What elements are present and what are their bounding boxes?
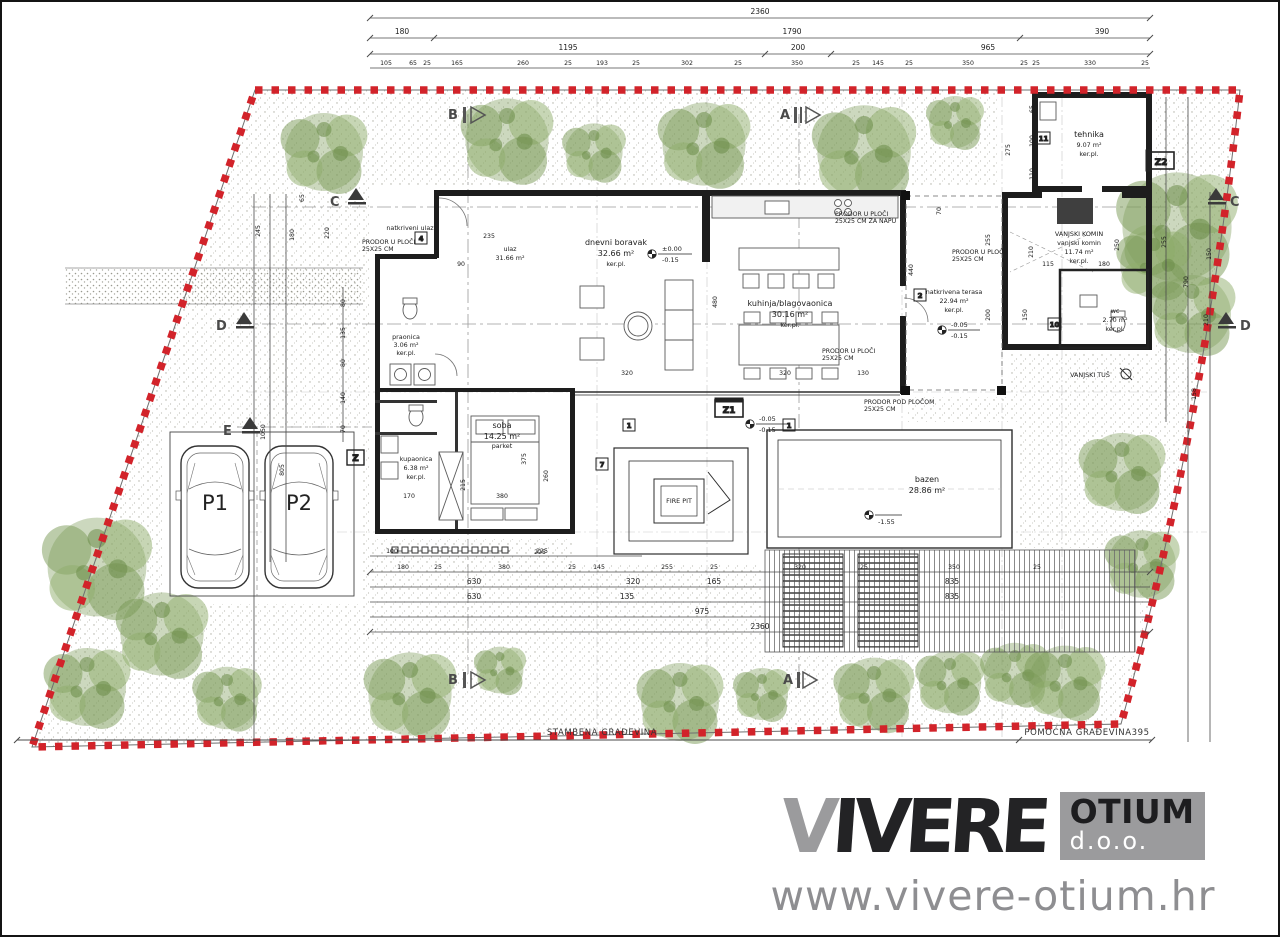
callout-1: 1	[627, 422, 632, 430]
dim-label: 2360	[750, 622, 769, 631]
brand-wordmark: VIVERE	[779, 792, 1048, 862]
dim-label: 25	[734, 60, 742, 67]
room-bedroom-area: 14.25 m²	[484, 432, 520, 441]
room-kitchen-area: 30.16 m²	[772, 310, 808, 319]
dim-label: 65	[409, 60, 417, 67]
room-bathroom-area: 6.38 m²	[403, 464, 428, 472]
room-terrace-name: natkrivena terasa	[926, 288, 983, 296]
annotation: PRODOR U PLOČI	[835, 209, 888, 218]
dim-label: 25	[423, 60, 431, 67]
parking-p2-label: P2	[286, 491, 312, 515]
dim-label: 110	[1029, 168, 1036, 180]
annotation: 25X25 CM	[822, 355, 854, 362]
room-living-floor: ker.pl.	[606, 260, 625, 268]
room-wc-floor: ker.pl.	[1105, 325, 1124, 333]
dim-label: 225	[534, 549, 546, 556]
dim-label: 70	[340, 425, 347, 433]
room-chimney-floor: ker.pl.	[1069, 257, 1088, 265]
dim-label: 210	[1203, 314, 1210, 326]
section-marker-b-top: B	[448, 108, 458, 123]
dim-label: 2360	[750, 7, 769, 16]
dim-label: 835	[945, 577, 960, 586]
room-bathroom-floor: ker.pl.	[406, 473, 425, 481]
logo-row: VIVERE OTIUM d.o.o.	[750, 792, 1236, 862]
dim-label: 165	[451, 60, 463, 67]
section-marker-a-bottom: A	[783, 673, 793, 688]
dim-label: 180	[395, 27, 410, 36]
dim-label: 165	[707, 577, 722, 586]
dim-label: 255	[985, 234, 992, 246]
dim-label: 320	[794, 564, 806, 571]
room-kitchen-name: kuhinja/blagovaonica	[748, 299, 833, 308]
annotation: 25X25 CM ZA NAPU	[835, 218, 896, 225]
dim-label: 140	[340, 392, 347, 404]
annotation: PRODOR POD PLOČOM	[864, 397, 935, 406]
room-living-name: dnevni boravak	[585, 238, 647, 247]
section-marker-d-left: D	[216, 319, 227, 334]
room-porch-name: natkriveni ulaz	[386, 224, 434, 232]
site-label-left: STAMBENA GRAĐEVINA	[547, 728, 657, 738]
annotation: PRODOR U PLOČI	[362, 237, 415, 246]
level-value: -1.55	[878, 518, 895, 526]
room-bedroom-floor: parket	[492, 442, 513, 450]
dim-label: 70	[936, 207, 943, 215]
brand-suffix-line1: OTIUM	[1070, 796, 1195, 828]
dim-label: 65	[299, 194, 306, 202]
dim-label: 25	[860, 564, 868, 571]
dim-label: 145	[872, 60, 884, 67]
dim-label: 180	[289, 229, 296, 241]
dim-label: 150	[1206, 248, 1213, 260]
section-marker-a-top: A	[780, 108, 790, 123]
section-marker-d-right: D	[1240, 319, 1251, 334]
room-bathroom-name: kupaonica	[400, 455, 433, 463]
dim-label: 480	[712, 296, 719, 308]
dim-label: 25	[434, 564, 442, 571]
dim-label: 135	[340, 327, 347, 339]
dim-label: 25	[1033, 564, 1041, 571]
fire-pit-label: FIRE PIT	[666, 497, 692, 505]
dim-label: 302	[681, 60, 693, 67]
annotation: PRODOR U PLOČI	[952, 247, 1005, 256]
room-chimney-caption: VANJSKI KOMIN	[1055, 230, 1103, 238]
dim-label: 805	[279, 464, 286, 476]
room-bedroom-name: soba	[492, 421, 511, 430]
dim-label: 25	[1032, 60, 1040, 67]
room-living-area: 32.66 m²	[598, 249, 634, 258]
logo-block: VIVERE OTIUM d.o.o. www.vivere-otium.hr	[750, 792, 1236, 920]
outdoor-shower-label: VANJSKI TUŠ	[1070, 370, 1110, 379]
car-p2	[260, 446, 338, 588]
section-marker-b-bottom: B	[448, 673, 458, 688]
dim-label: 630	[467, 577, 482, 586]
website-url: www.vivere-otium.hr	[750, 872, 1236, 920]
dim-label: 630	[467, 592, 482, 601]
dim-label: 145	[593, 564, 605, 571]
dim-label: 220	[324, 227, 331, 239]
dim-label: 390	[1095, 27, 1110, 36]
dim-label: 25	[1020, 60, 1028, 67]
dim-label: 320	[626, 577, 641, 586]
site-label-right: POMOĆNA GRAĐEVINA395	[1024, 726, 1149, 738]
dim-label: 135	[620, 592, 635, 601]
room-laundry-area: 3.06 m²	[393, 341, 418, 349]
annotation: 25X25 CM	[952, 256, 984, 263]
dim-label: 25	[1141, 60, 1149, 67]
room-terrace-floor: ker.pl.	[944, 306, 963, 314]
pool	[767, 430, 1012, 548]
dim-label: 130	[857, 370, 869, 377]
level-value: -0.15	[662, 256, 679, 264]
dim-label: 25	[568, 564, 576, 571]
callout-7: 7	[600, 461, 605, 469]
callout-11: 11	[1039, 135, 1049, 143]
brand-first-letter: V	[778, 784, 835, 870]
dim-label: 380	[496, 493, 508, 500]
room-pool-area: 28.86 m²	[909, 486, 945, 495]
dim-label: 835	[945, 592, 960, 601]
site-plan-drawing: 2360 180 1790 390 1195 200 965 105 65 25…	[2, 2, 1280, 782]
dim-label: 193	[596, 60, 608, 67]
dim-label: 180	[1098, 261, 1110, 268]
callout-2: 2	[918, 292, 923, 300]
level-value: -0.15	[951, 332, 968, 340]
dim-label: 255	[1161, 236, 1168, 248]
dim-label: 25	[632, 60, 640, 67]
callout-4: 4	[419, 235, 424, 243]
dim-label: 80	[340, 299, 347, 307]
level-value: ±0.00	[662, 245, 682, 253]
dim-label: 965	[981, 43, 996, 52]
dim-label: 105	[380, 60, 392, 67]
room-chimney-name: vanjski komin	[1057, 239, 1101, 247]
room-wc-name: wc	[1111, 307, 1120, 315]
dim-label: 200	[985, 309, 992, 321]
dim-label: 215	[460, 479, 467, 491]
dim-label: 80	[340, 359, 347, 367]
dim-label: 100	[386, 548, 398, 555]
dim-label: 330	[1084, 60, 1096, 67]
annotation: 25X25 CM	[864, 406, 896, 413]
section-marker-e-left: E	[223, 424, 232, 439]
dim-label: 65	[1029, 105, 1036, 113]
section-marker-c-right: C	[1230, 195, 1240, 210]
dim-label: 975	[695, 607, 710, 616]
dim-label: 25	[905, 60, 913, 67]
floor-plan-sheet: 2360 180 1790 390 1195 200 965 105 65 25…	[0, 0, 1280, 937]
room-chimney-area: 11.74 m²	[1064, 248, 1094, 256]
room-tech-area: 9.07 m²	[1076, 141, 1101, 149]
annotation: 25X25 CM	[362, 246, 394, 253]
parking-p1-label: P1	[202, 491, 228, 515]
dim-label: 350	[962, 60, 974, 67]
dim-label: 200	[791, 43, 806, 52]
callout-z2: Z2	[1155, 158, 1168, 168]
dim-label: 380	[498, 564, 510, 571]
dim-label: 180	[397, 564, 409, 571]
dim-label: 170	[403, 493, 415, 500]
room-tech-floor: ker.pl.	[1079, 150, 1098, 158]
brand-rest: IVERE	[830, 784, 1049, 870]
dim-labels-top: 2360 180 1790 390 1195 200 965 105 65 25…	[380, 7, 1149, 67]
dim-label: 1050	[260, 424, 267, 440]
dim-label: 25	[564, 60, 572, 67]
dim-label: 250	[1114, 239, 1121, 251]
dim-label: 100	[1029, 135, 1036, 147]
dim-label: 1790	[782, 27, 801, 36]
room-laundry-name: praonica	[392, 333, 420, 341]
dim-label: 150	[1022, 309, 1029, 321]
dim-label: 260	[543, 470, 550, 482]
dim-label: 440	[908, 264, 915, 276]
dim-label: 245	[255, 225, 262, 237]
dim-label: 235	[483, 233, 495, 240]
dim-label: 275	[1005, 144, 1012, 156]
callout-1: 1	[787, 422, 792, 430]
callout-z: Z	[352, 454, 359, 464]
dim-label: 320	[779, 370, 791, 377]
dim-label: 260	[517, 60, 529, 67]
brand-suffix-box: OTIUM d.o.o.	[1060, 792, 1205, 860]
level-value: -0.05	[759, 415, 776, 423]
driveway	[65, 268, 363, 304]
room-pool-name: bazen	[915, 475, 939, 484]
dim-label: 158	[1191, 388, 1198, 400]
section-marker-c-left: C	[330, 195, 340, 210]
room-terrace-area: 22.94 m²	[939, 297, 969, 305]
dim-label: 210	[1028, 246, 1035, 258]
room-laundry-floor: ker.pl.	[396, 349, 415, 357]
dim-label: 255	[661, 564, 673, 571]
room-kitchen-floor: ker.pl.	[780, 321, 799, 329]
car-p1	[176, 446, 254, 588]
brand-suffix-line2: d.o.o.	[1070, 828, 1195, 854]
dim-label: 25	[710, 564, 718, 571]
annotation: PRODOR U PLOČI	[822, 346, 875, 355]
dim-label: 375	[521, 453, 528, 465]
level-value: -0.15	[759, 426, 776, 434]
dim-label: 90	[457, 261, 465, 268]
room-wc-area: 2.70 m²	[1102, 316, 1127, 324]
dim-label: 1195	[558, 43, 577, 52]
dim-label: 350	[791, 60, 803, 67]
callout-10: 10	[1050, 321, 1060, 329]
dim-label: 790	[1183, 276, 1190, 288]
dim-label: 115	[1042, 261, 1054, 268]
dim-label: 350	[948, 564, 960, 571]
room-entry-name: ulaz	[503, 245, 517, 253]
callout-z1: Z1	[723, 406, 736, 416]
room-tech-name: tehnika	[1074, 130, 1104, 139]
room-entry-area: 31.66 m²	[495, 254, 525, 262]
dim-label: 25	[852, 60, 860, 67]
level-value: -0.05	[951, 321, 968, 329]
dim-label: 320	[621, 370, 633, 377]
